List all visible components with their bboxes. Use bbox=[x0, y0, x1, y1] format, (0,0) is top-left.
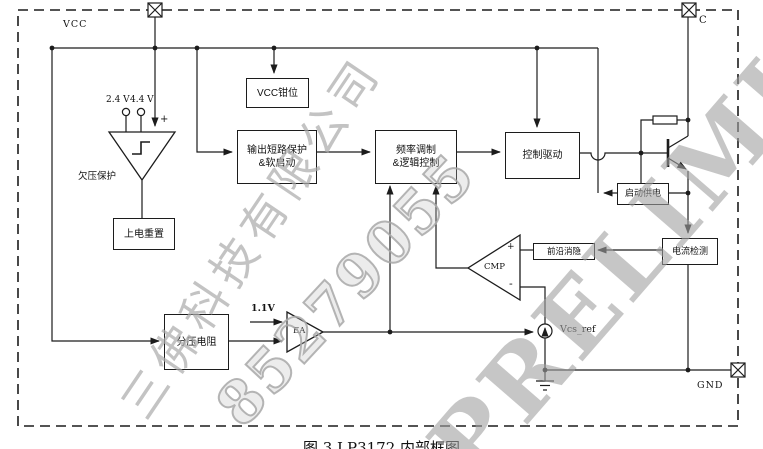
ref-4v4-node bbox=[137, 108, 144, 115]
vcs-ref-source-symbol bbox=[538, 324, 552, 338]
c-pad-icon bbox=[682, 3, 696, 17]
block-power-on-reset-label: 上电重置 bbox=[124, 228, 164, 241]
block-diagram: VCC钳位 上电重置 输出短路保护 &软启动 频率调制 &逻辑控制 控制驱动 启… bbox=[0, 0, 763, 449]
figure-caption: 图 3 LP3172 内部框图 bbox=[303, 437, 460, 449]
block-leading-edge-blanking: 前沿消隐 bbox=[533, 243, 595, 260]
c-pad-label: C bbox=[699, 15, 707, 26]
gnd-pad-icon bbox=[731, 363, 745, 377]
block-current-sense: 电流检测 bbox=[662, 238, 718, 265]
cmp-label: CMP bbox=[484, 262, 505, 272]
block-vcc-clamp-label: VCC钳位 bbox=[257, 87, 298, 100]
scp-line1: 输出短路保护 bbox=[247, 144, 307, 157]
block-short-circuit-protect: 输出短路保护 &软启动 bbox=[237, 130, 317, 184]
scp-line2: &软启动 bbox=[259, 157, 296, 170]
block-startup-supply-label: 启动供电 bbox=[625, 188, 661, 200]
block-power-on-reset: 上电重置 bbox=[113, 218, 175, 250]
uvlo-plus-label: + bbox=[160, 114, 168, 125]
ref-2v4-node bbox=[122, 108, 129, 115]
gnd-pad-label: GND bbox=[697, 380, 724, 391]
fm-line2: &逻辑控制 bbox=[393, 157, 440, 170]
cmp-plus-label: + bbox=[507, 242, 515, 252]
vcc-pad-icon bbox=[148, 3, 162, 17]
block-vcc-clamp: VCC钳位 bbox=[246, 78, 309, 108]
block-current-sense-label: 电流检测 bbox=[672, 246, 708, 258]
fm-line1: 频率调制 bbox=[396, 144, 436, 157]
ref-2v4-label: 2.4 V bbox=[106, 95, 130, 105]
ea-label: EA bbox=[293, 326, 305, 336]
uvlo-comparator-symbol bbox=[109, 132, 175, 180]
block-freq-modulation: 频率调制 &逻辑控制 bbox=[375, 130, 457, 184]
vcc-pad-label: VCC bbox=[63, 19, 87, 30]
ref-4v4-label: 4.4 V bbox=[130, 95, 154, 105]
block-leb-label: 前沿消隐 bbox=[547, 246, 581, 257]
ref-1v1-label: 1.1V bbox=[251, 303, 275, 314]
block-divider-resistor: 分压电阻 bbox=[164, 314, 229, 370]
uvlo-label: 欠压保护 bbox=[78, 168, 116, 182]
vcs-ref-label: Vcs_ref bbox=[560, 324, 596, 335]
resistor-symbol bbox=[653, 116, 677, 124]
block-startup-supply: 启动供电 bbox=[617, 183, 669, 205]
cmp-minus-label: - bbox=[509, 277, 513, 290]
block-divider-label: 分压电阻 bbox=[177, 336, 217, 349]
block-control-drive-label: 控制驱动 bbox=[523, 149, 563, 162]
block-control-drive: 控制驱动 bbox=[505, 132, 580, 179]
